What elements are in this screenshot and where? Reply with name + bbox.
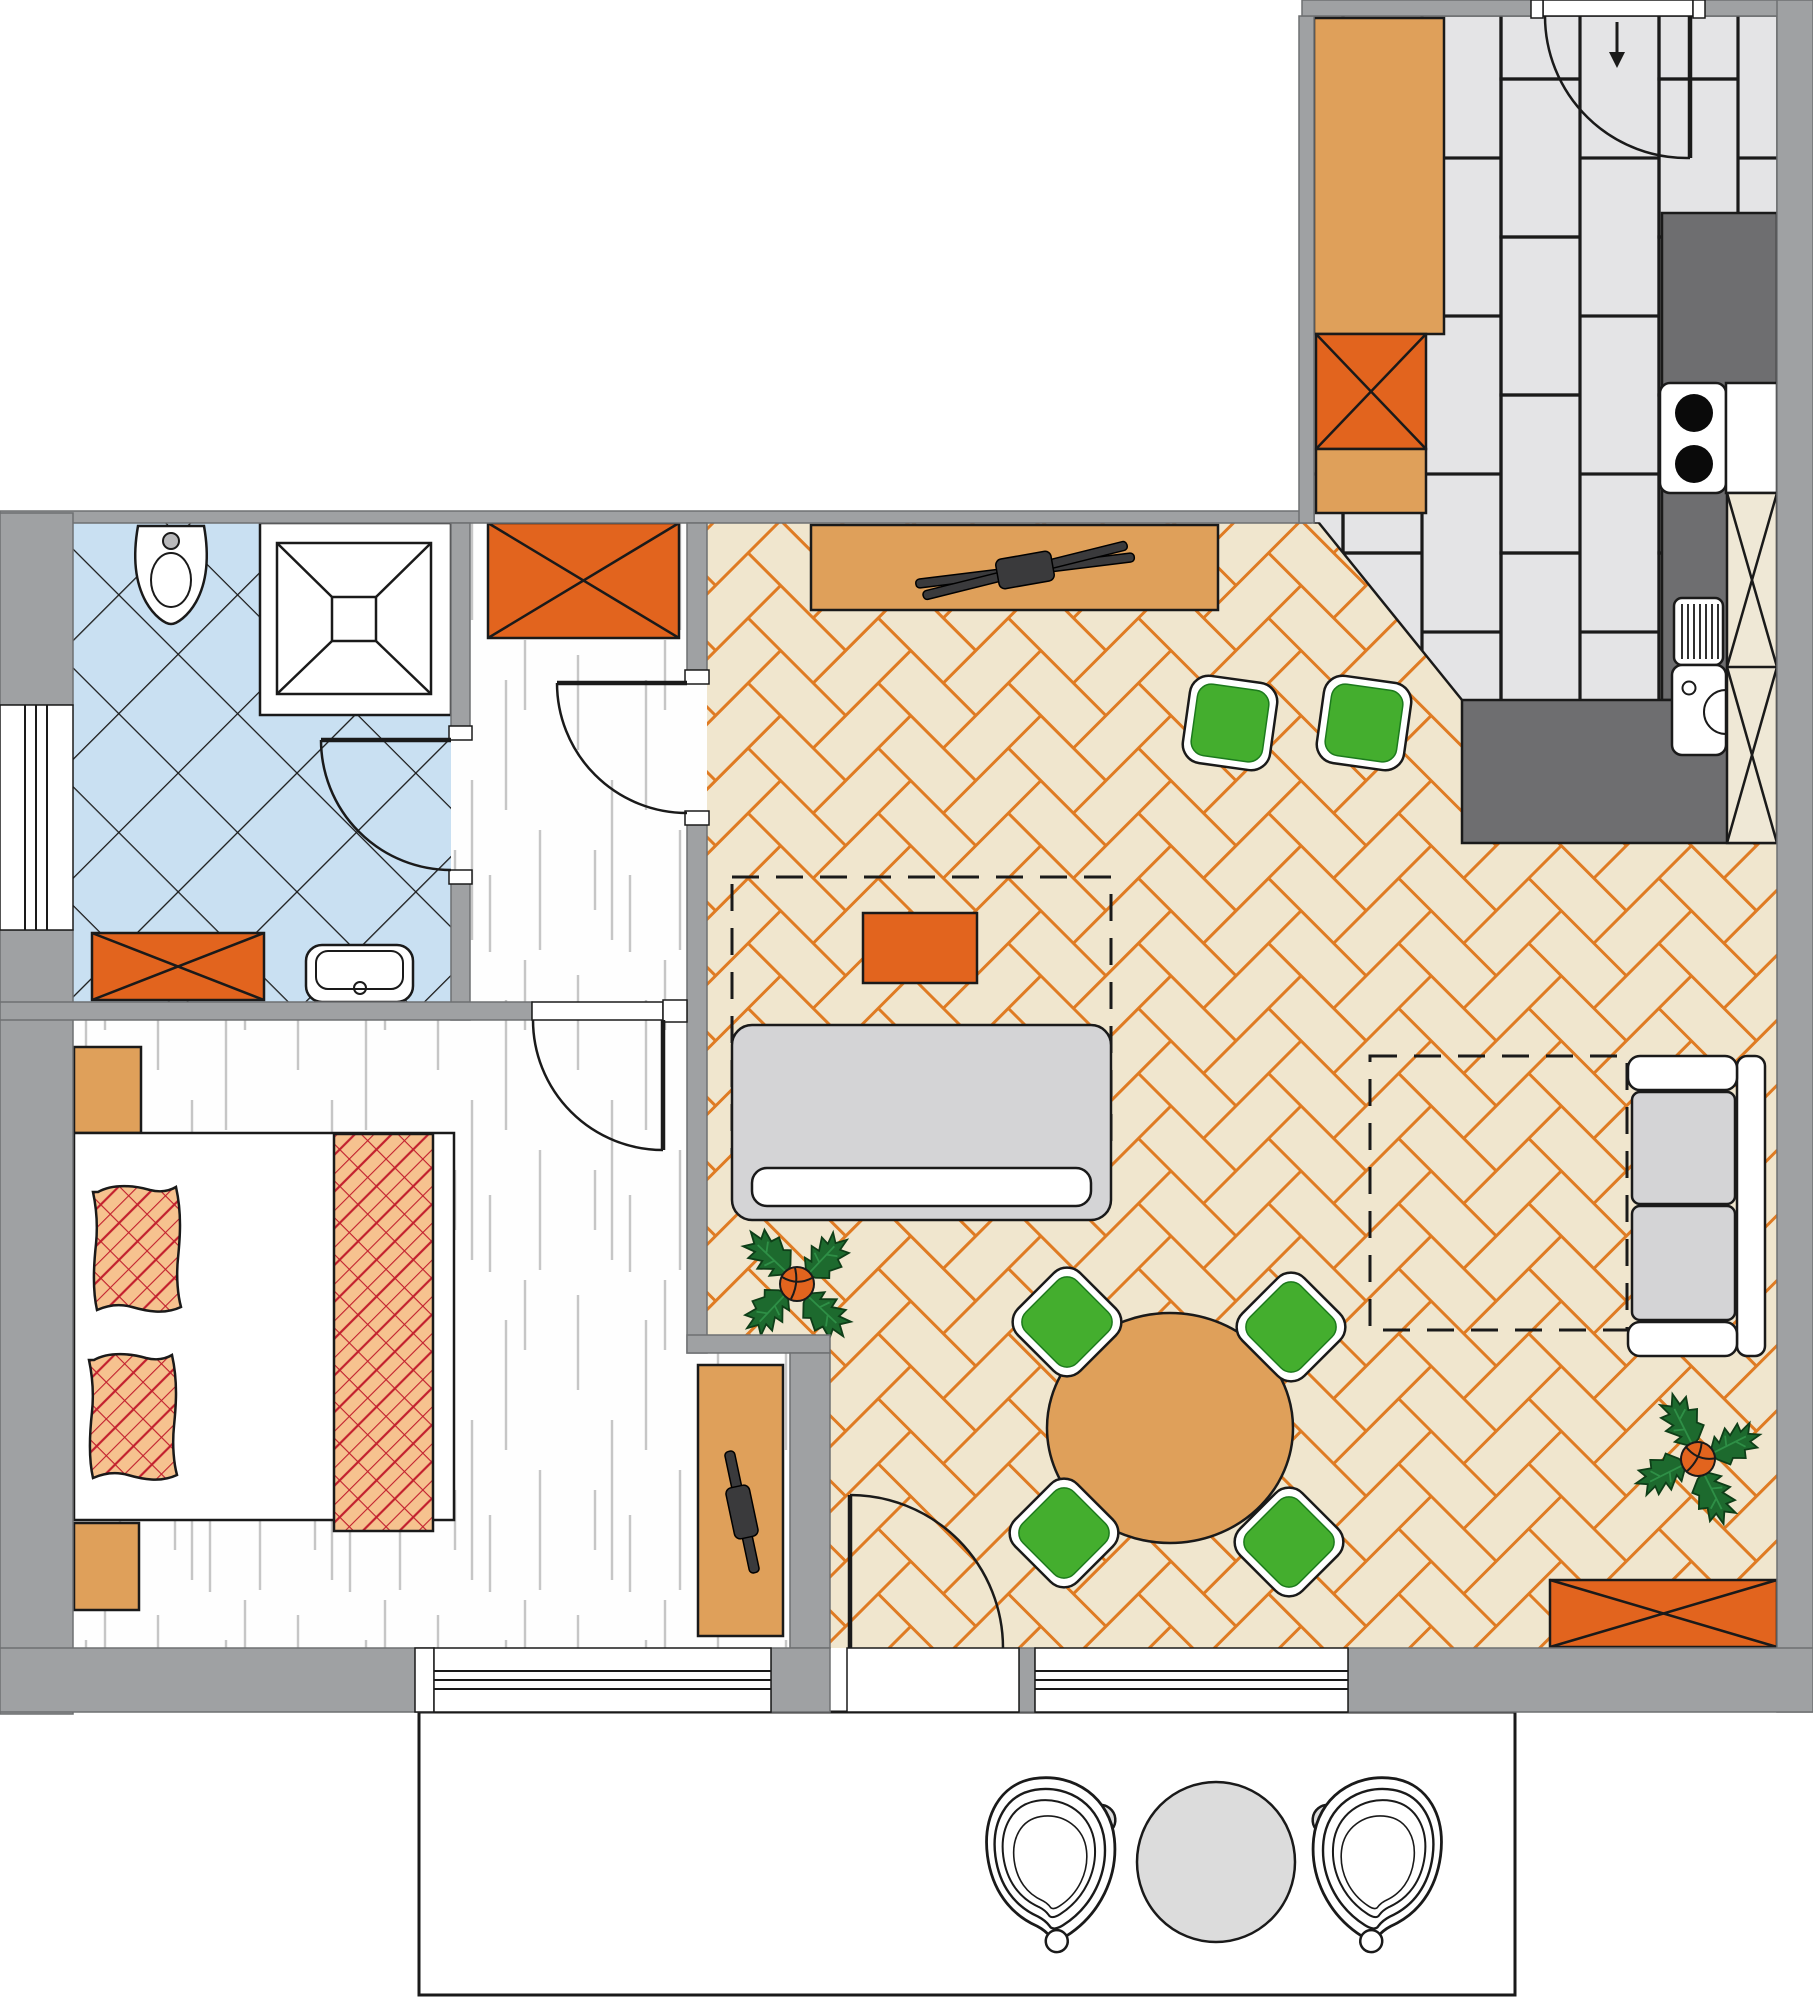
wall-hall-right-b: [687, 813, 707, 1353]
shower-drain: [332, 597, 376, 641]
kitchen-counter-left: [1314, 18, 1444, 334]
burner: [1675, 394, 1713, 432]
wall-bottom-b: [1019, 1648, 1035, 1712]
stool-left: [1180, 673, 1279, 772]
wall-bathroom-right-a: [451, 523, 470, 728]
day-bed-duvet: [752, 1168, 1091, 1206]
sofa: [1628, 1056, 1765, 1356]
sofa-arm-bottom: [1628, 1322, 1737, 1356]
floor-plan-canvas: [0, 0, 1813, 2000]
wall-left-lower: [0, 930, 73, 1714]
sink-unit: [1672, 665, 1726, 755]
wall-hall-right-a: [687, 523, 707, 683]
window-left: [0, 705, 73, 930]
sofa-cushion: [1632, 1206, 1735, 1320]
pillow-top: [93, 1186, 181, 1312]
window-living: [1035, 1648, 1348, 1712]
toilet-flush-button: [163, 533, 179, 549]
floor-plan: [0, 0, 1813, 2000]
desk: [863, 913, 977, 983]
wall-bathroom-bottom: [0, 1002, 532, 1020]
hallway: [488, 523, 679, 638]
nightstand-top: [74, 1047, 141, 1133]
wall-alcove-vertical: [790, 1353, 830, 1648]
wall-bottom-a: [0, 1648, 434, 1712]
stool-right: [1314, 673, 1413, 772]
kitchen-base-cabinet: [1316, 449, 1426, 513]
wall-right: [1777, 0, 1813, 1712]
sofa-arm-top: [1628, 1056, 1737, 1090]
wall-alcove-step: [687, 1335, 830, 1353]
radiator-fins: [1682, 604, 1718, 659]
wall-top-kitchen-a: [1302, 0, 1543, 16]
wall-left-upper: [0, 513, 73, 705]
window-jamb: [415, 1648, 434, 1712]
wall-top-main: [0, 511, 1311, 523]
sofa-back: [1737, 1056, 1765, 1356]
balcony: [419, 1712, 1515, 1995]
burner: [1675, 445, 1713, 483]
stove-worktop: [1726, 383, 1777, 493]
blanket: [334, 1134, 433, 1531]
wall-bathroom-right-b: [451, 883, 470, 1020]
wall-bottom-pier: [771, 1648, 830, 1712]
nightstand-bottom: [74, 1523, 139, 1610]
wall-bottom-c: [1348, 1648, 1813, 1712]
balcony-table: [1137, 1782, 1295, 1942]
wall-kitchen-left: [1299, 16, 1314, 523]
sofa-cushion: [1632, 1092, 1735, 1204]
pillow-bottom: [89, 1354, 177, 1480]
window-bedroom: [434, 1648, 771, 1712]
